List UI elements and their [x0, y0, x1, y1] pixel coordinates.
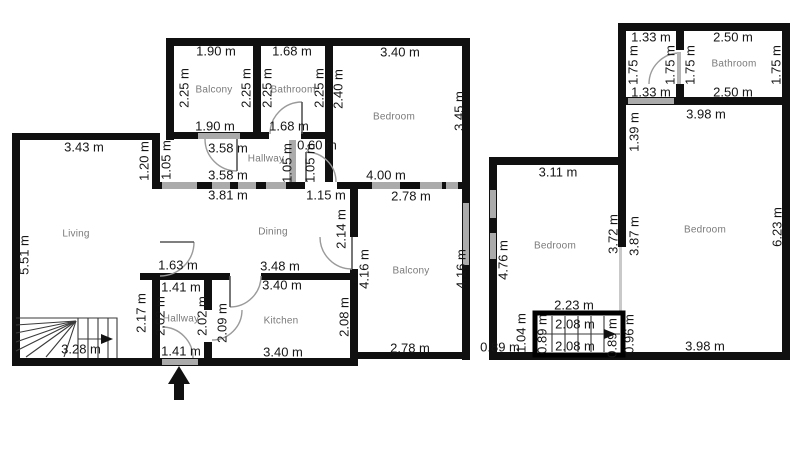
dim-label-h-26: 3.11 m — [539, 165, 578, 180]
dim-label-v-6: 1.20 m — [137, 141, 152, 181]
dim-label-v-28: 1.04 m — [514, 313, 529, 353]
room-label-bedroom-11: Bedroom — [684, 225, 726, 236]
dim-label-v-15: 2.02 m — [153, 296, 168, 336]
dim-label-v-12: 4.16 m — [357, 249, 372, 289]
dim-label-v-2: 2.25 m — [260, 68, 275, 108]
dim-label-h-0: 1.90 m — [196, 44, 236, 59]
room-label-living-4: Living — [62, 229, 89, 240]
dim-label-v-20: 1.75 m — [663, 45, 678, 85]
dim-label-v-0: 2.25 m — [177, 68, 192, 108]
dim-label-h-23: 1.33 m — [631, 85, 671, 100]
dim-label-h-4: 1.68 m — [269, 119, 309, 134]
floor-plan-drawing: BalconyBathroomBedroomHallwayLivingDinin… — [0, 0, 800, 467]
room-divider-line — [619, 247, 622, 311]
dim-label-h-11: 1.15 m — [306, 188, 346, 203]
dim-label-h-15: 3.40 m — [262, 278, 302, 293]
entrance-arrow — [168, 366, 190, 400]
dim-label-v-29: 0.89 m — [535, 314, 550, 354]
entrance-door — [162, 359, 198, 365]
room-label-dining-5: Dining — [258, 227, 288, 238]
dim-label-v-3: 2.25 m — [312, 68, 327, 108]
door-kitchen-top — [230, 276, 261, 307]
dim-label-h-20: 2.78 m — [390, 341, 430, 356]
dim-label-v-30: 0.89 m — [605, 318, 620, 358]
dim-label-v-22: 1.75 m — [769, 45, 784, 85]
dim-label-h-30: 2.08 m — [555, 339, 595, 354]
dim-label-h-29: 2.08 m — [555, 317, 595, 332]
stairs-direction-arrow-left — [101, 334, 113, 344]
dim-label-v-14: 2.17 m — [134, 293, 149, 333]
dim-label-h-1: 1.68 m — [272, 44, 312, 59]
dim-label-v-1: 2.25 m — [239, 68, 254, 108]
dim-label-v-13: 4.16 m — [454, 249, 469, 289]
dimension-labels-layer: 1.90 m1.68 m3.40 m1.90 m1.68 m3.43 m3.58… — [17, 30, 785, 360]
dim-label-h-24: 2.50 m — [713, 85, 753, 100]
dim-label-v-11: 2.14 m — [334, 209, 349, 249]
dim-label-v-8: 1.05 m — [280, 143, 295, 183]
dim-label-v-5: 3.45 m — [452, 91, 467, 131]
dim-label-h-25: 3.98 m — [686, 107, 726, 122]
room-label-bathroom-1: Bathroom — [271, 85, 316, 96]
dim-label-h-8: 3.58 m — [208, 168, 248, 183]
dim-label-v-24: 4.76 m — [496, 240, 511, 280]
dim-label-v-9: 1.05 m — [303, 143, 318, 183]
room-label-bathroom-9: Bathroom — [712, 59, 757, 70]
dim-label-v-19: 1.75 m — [626, 45, 641, 85]
dim-label-v-27: 6.23 m — [770, 207, 785, 247]
dim-label-h-3: 1.90 m — [195, 119, 235, 134]
dim-label-h-6: 3.58 m — [208, 141, 248, 156]
dim-label-h-31: 3.98 m — [685, 339, 725, 354]
dim-label-v-18: 2.08 m — [337, 297, 352, 337]
dim-label-v-17: 2.09 m — [215, 303, 230, 343]
room-label-bedroom-2: Bedroom — [373, 112, 415, 123]
dim-label-v-21: 1.75 m — [683, 45, 698, 85]
dim-label-h-16: 1.41 m — [161, 280, 201, 295]
room-label-kitchen-8: Kitchen — [264, 316, 299, 327]
dim-label-h-21: 1.33 m — [631, 30, 671, 45]
dim-label-h-14: 3.48 m — [260, 259, 300, 274]
dim-label-h-18: 1.41 m — [161, 344, 201, 359]
dim-label-v-31: 0.96 m — [622, 314, 637, 354]
dim-label-h-9: 4.00 m — [366, 168, 406, 183]
room-label-bedroom-10: Bedroom — [534, 241, 576, 252]
dim-label-h-10: 3.81 m — [208, 188, 248, 203]
dim-label-v-26: 3.87 m — [627, 216, 642, 256]
dim-label-h-13: 1.63 m — [158, 258, 198, 273]
dim-label-v-25: 3.72 m — [606, 214, 621, 254]
dim-label-h-17: 3.28 m — [61, 342, 101, 357]
dim-label-h-12: 2.78 m — [391, 189, 431, 204]
dim-label-v-16: 2.02 m — [195, 296, 210, 336]
dim-label-h-2: 3.40 m — [380, 45, 420, 60]
dim-label-h-5: 3.43 m — [64, 140, 104, 155]
dim-label-v-4: 2.40 m — [331, 69, 346, 109]
dim-label-v-7: 1.05 m — [159, 140, 174, 180]
floor-plan-canvas: BalconyBathroomBedroomHallwayLivingDinin… — [0, 0, 800, 467]
dim-label-h-22: 2.50 m — [713, 30, 753, 45]
dim-label-h-19: 3.40 m — [263, 345, 303, 360]
dim-label-v-10: 5.51 m — [17, 235, 32, 275]
room-label-balcony-6: Balcony — [393, 266, 430, 277]
dim-label-h-27: 2.23 m — [554, 298, 594, 313]
room-label-balcony-0: Balcony — [196, 85, 233, 96]
dim-label-v-23: 1.39 m — [627, 112, 642, 152]
